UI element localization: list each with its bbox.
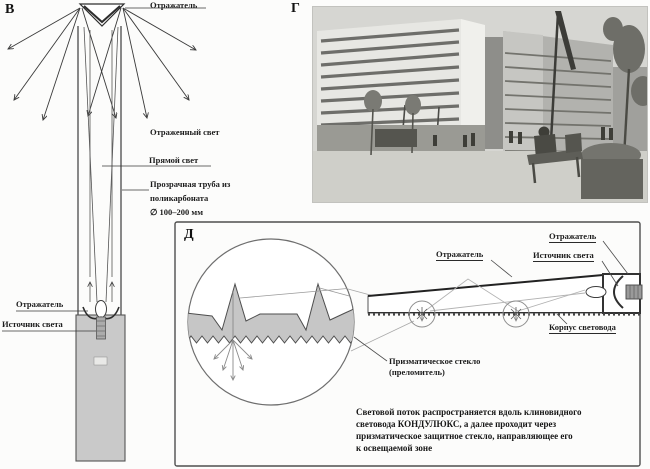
label-tube-1: Прозрачная труба из [150, 179, 230, 189]
panel-g-letter: Г [291, 1, 300, 17]
pole-fixture [94, 357, 107, 365]
label-light-source-d: Источник света [533, 250, 594, 262]
caption-line-3: призматическое защитное стекло, направля… [356, 430, 641, 442]
tube-icon [78, 26, 121, 315]
figure-page: В Г Д Отражатель Отраженный свет Прямой … [0, 0, 650, 469]
label-reflected-light: Отраженный свет [150, 127, 219, 137]
figure-caption: Световой поток распространяется вдоль кл… [356, 406, 641, 454]
label-reflector-left-d: Отражатель [436, 249, 483, 261]
building-left [317, 19, 485, 139]
light-pipe-diagram [2, 4, 211, 461]
label-direct-light: Прямой свет [149, 155, 198, 165]
label-prism-1: Призматическое стекло [389, 356, 480, 366]
caption-line-4: к освещаемой зоне [356, 442, 641, 454]
caption-line-2: световода КОНДУЛЮКС, а далее проходит че… [356, 418, 641, 430]
label-tube-3: ∅ 100–200 мм [150, 207, 203, 217]
panel-d-letter: Д [184, 227, 194, 243]
building-mid [485, 37, 503, 149]
street-photo [312, 6, 648, 203]
label-tube-2: поликарбоната [150, 193, 208, 203]
panel-b-letter: В [5, 2, 14, 18]
label-reflector-top: Отражатель [150, 0, 197, 10]
label-prism-2: (преломитель) [389, 367, 445, 377]
street-photo-art [313, 7, 647, 202]
label-housing: Корпус световода [549, 322, 616, 334]
caption-line-1: Световой поток распространяется вдоль кл… [356, 406, 641, 418]
label-light-source-b: Источник света [2, 319, 63, 329]
label-reflector-right-d: Отражатель [549, 231, 596, 243]
label-reflector-bottom: Отражатель [16, 299, 63, 309]
